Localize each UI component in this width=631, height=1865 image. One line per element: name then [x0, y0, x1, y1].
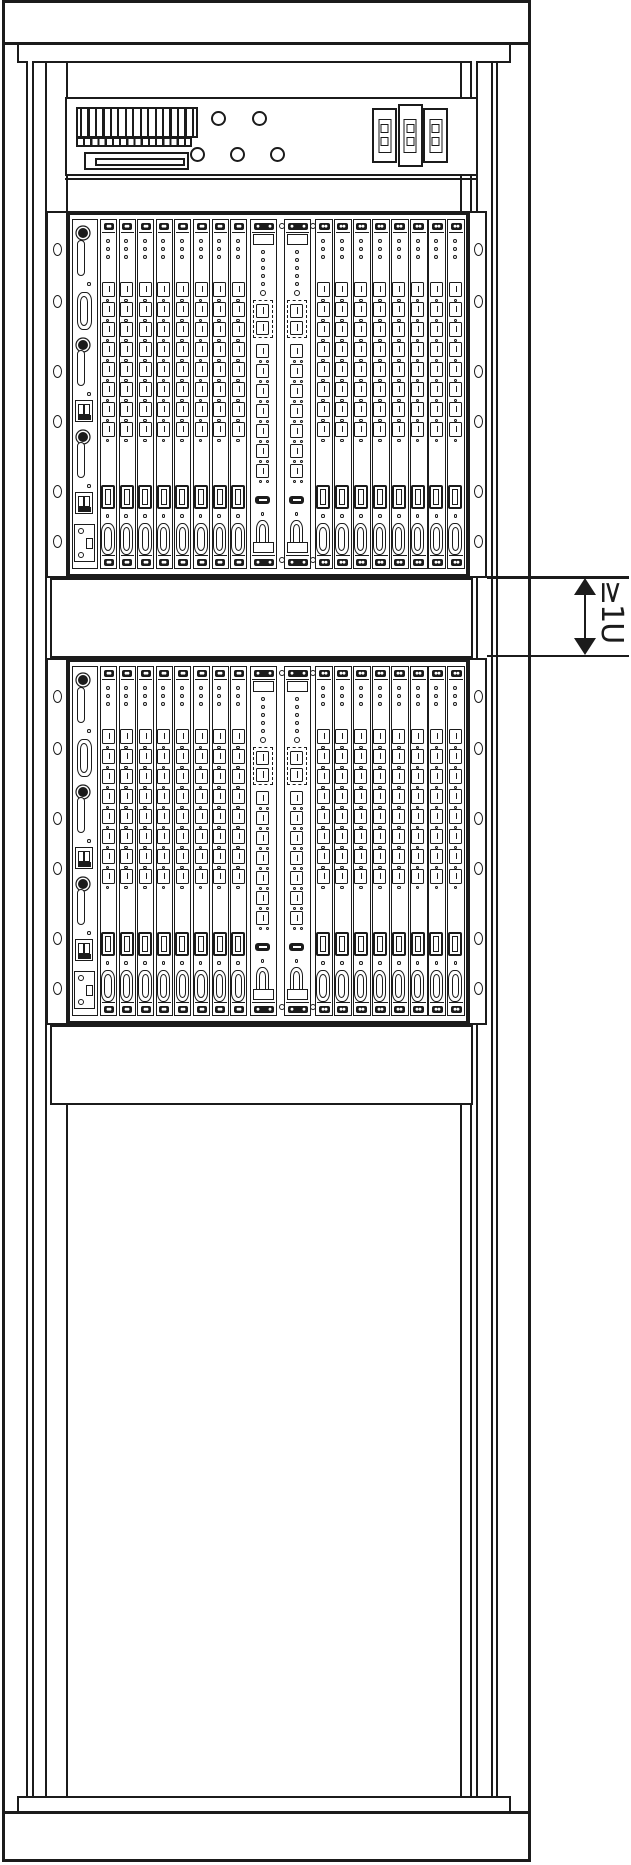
port-led — [293, 440, 297, 444]
card-top-latch — [393, 220, 407, 233]
flange-hole — [53, 485, 62, 498]
rj45-port — [256, 364, 269, 378]
latch-handle — [356, 559, 367, 566]
rj45-port — [232, 382, 245, 397]
port-led — [293, 420, 297, 424]
rj45-port — [411, 302, 424, 317]
rj45-port — [290, 791, 303, 805]
status-led — [453, 239, 457, 243]
status-led — [416, 255, 420, 259]
rj45-port — [411, 869, 424, 884]
rj45-port — [317, 382, 330, 397]
rj45-port — [176, 849, 189, 864]
rj45-port — [157, 302, 170, 317]
port-led — [293, 460, 297, 464]
subrack-1 — [46, 211, 487, 578]
port-led — [321, 514, 325, 518]
cage-screw — [279, 670, 285, 676]
latch-handle — [178, 670, 188, 677]
latch-handle — [432, 559, 443, 566]
status-led — [236, 702, 240, 706]
wide-rj45-port — [157, 485, 171, 509]
rj45-port — [120, 789, 133, 804]
port-led — [293, 887, 297, 891]
wide-rj45-port — [392, 932, 406, 956]
port-led — [143, 439, 147, 443]
card-bottom-latch — [214, 1002, 227, 1015]
port-led — [259, 420, 263, 424]
wide-rj45-port — [194, 932, 208, 956]
rj45-port — [102, 362, 115, 377]
card-top-latch — [121, 220, 134, 233]
flange-hole — [474, 243, 483, 256]
rj45-port — [317, 869, 330, 884]
port-led — [259, 440, 263, 444]
status-led — [295, 282, 299, 286]
status-led — [106, 686, 110, 690]
status-led — [434, 702, 438, 706]
latch-handle — [375, 670, 386, 677]
port-led — [259, 887, 263, 891]
bracket-screw — [78, 975, 84, 981]
rj45-port — [392, 789, 405, 804]
rj45-port — [373, 382, 386, 397]
rj45-port — [195, 829, 208, 844]
rj45-port — [411, 322, 424, 337]
wide-rj45-port — [101, 932, 115, 956]
fuse-block — [75, 939, 93, 961]
port-led — [293, 867, 297, 871]
port-led — [300, 887, 304, 891]
faceplate-screw — [294, 737, 300, 743]
rack-crossbar — [65, 178, 478, 180]
rj45-port — [120, 322, 133, 337]
port-led — [266, 480, 270, 484]
mounting-bracket — [74, 971, 95, 1009]
rj45-port — [256, 304, 269, 318]
rj45-port — [157, 382, 170, 397]
rj45-port — [430, 789, 443, 804]
rj45-port — [213, 322, 226, 337]
latch-handle — [159, 670, 169, 677]
rj45-port — [195, 422, 208, 437]
port-led — [259, 807, 263, 811]
line-card-narrow — [100, 666, 117, 1016]
rj45-port — [102, 869, 115, 884]
dsub-connector — [176, 970, 190, 1002]
status-led — [261, 250, 265, 254]
latch-handle — [254, 559, 274, 566]
rj45-port — [335, 422, 348, 437]
rj45-port — [195, 382, 208, 397]
wide-rj45-port — [157, 932, 171, 956]
port-led — [199, 886, 203, 890]
status-led — [199, 702, 203, 706]
rj45-port — [290, 811, 303, 825]
line-card-narrow — [410, 666, 428, 1016]
rj45-port — [411, 729, 424, 744]
dsub-connector — [430, 970, 444, 1002]
handle-slot — [77, 889, 85, 925]
card-top-latch — [121, 667, 134, 680]
rj45-port — [213, 849, 226, 864]
card-top-latch — [158, 667, 171, 680]
rj45-port — [449, 789, 462, 804]
status-led — [378, 694, 382, 698]
status-led — [106, 239, 110, 243]
rj45-port — [139, 729, 152, 744]
terminal-block — [76, 107, 198, 138]
card-top-latch — [232, 220, 245, 233]
port-led — [266, 400, 270, 404]
rack-rail — [491, 61, 493, 1797]
dsub-connector — [120, 970, 134, 1002]
line-card-narrow — [353, 666, 371, 1016]
port-led — [259, 827, 263, 831]
card-bottom-latch — [232, 555, 245, 568]
rj45-port — [195, 769, 208, 784]
rj45-port — [157, 789, 170, 804]
line-card-narrow — [137, 219, 154, 569]
latch-handle — [319, 559, 330, 566]
latch-handle — [104, 1006, 114, 1013]
rj45-port — [317, 829, 330, 844]
port-led — [217, 514, 221, 518]
rj45-port — [317, 729, 330, 744]
port-led — [300, 927, 304, 931]
rj45-port — [290, 871, 303, 885]
line-card-narrow — [447, 219, 465, 569]
flange-hole — [474, 862, 483, 875]
port-led — [300, 380, 304, 384]
rj45-port — [392, 769, 405, 784]
rj45-port — [176, 402, 189, 417]
status-led — [295, 713, 299, 717]
port-led — [162, 439, 166, 443]
card-cage — [68, 211, 468, 578]
flange-hole — [474, 690, 483, 703]
rj45-port — [449, 829, 462, 844]
status-led — [321, 686, 325, 690]
rj45-port — [120, 869, 133, 884]
status-led — [161, 247, 165, 251]
status-led — [295, 258, 299, 262]
rj45-port — [411, 809, 424, 824]
breaker-window — [432, 137, 440, 146]
rj45-port — [232, 402, 245, 417]
rj45-port — [157, 749, 170, 764]
card-top-latch — [430, 667, 444, 680]
rack-base — [2, 1811, 531, 1862]
rj45-port — [102, 322, 115, 337]
port-led — [236, 961, 240, 965]
rj45-port — [373, 322, 386, 337]
rj45-port — [335, 342, 348, 357]
rj45-port — [195, 322, 208, 337]
handle-slot — [77, 797, 85, 833]
card-top-latch — [214, 220, 227, 233]
card-bottom-latch — [121, 1002, 134, 1015]
faceplate-tab — [287, 234, 308, 245]
rj45-port — [139, 829, 152, 844]
flange-hole — [53, 415, 62, 428]
usb-port — [255, 943, 270, 951]
rj45-port — [335, 282, 348, 297]
latch-handle — [394, 559, 405, 566]
status-led — [87, 484, 91, 488]
status-led — [378, 255, 382, 259]
rj45-port — [290, 464, 303, 478]
line-card-narrow — [428, 219, 446, 569]
rj45-port — [430, 422, 443, 437]
rj45-port — [411, 749, 424, 764]
latch-handle — [178, 1006, 188, 1013]
status-led — [124, 702, 128, 706]
circuit-breaker — [423, 108, 448, 163]
line-card-wide — [284, 666, 311, 1016]
status-led — [124, 686, 128, 690]
rj45-port — [139, 809, 152, 824]
status-led — [199, 239, 203, 243]
status-led — [359, 239, 363, 243]
rj45-port — [354, 829, 367, 844]
rj45-port — [449, 302, 462, 317]
port-led — [293, 380, 297, 384]
rj45-port — [256, 321, 269, 335]
dsub-connector — [231, 523, 245, 555]
latch-handle — [159, 223, 169, 230]
rj45-port — [102, 422, 115, 437]
indicator-light — [190, 147, 205, 162]
rj45-port — [256, 911, 269, 925]
port-led — [454, 439, 458, 443]
rj45-port — [354, 402, 367, 417]
rj45-port — [120, 749, 133, 764]
card-top-latch — [252, 220, 275, 233]
port-led — [454, 886, 458, 890]
status-led — [161, 686, 165, 690]
rj45-port — [430, 809, 443, 824]
port-led — [124, 514, 128, 518]
latch-handle — [451, 223, 462, 230]
card-bottom-latch — [158, 555, 171, 568]
handle-slot — [77, 687, 85, 723]
rj45-port — [232, 849, 245, 864]
status-led — [106, 702, 110, 706]
port-led — [266, 887, 270, 891]
rj45-port — [317, 849, 330, 864]
latch-handle — [178, 223, 188, 230]
rj45-port — [120, 849, 133, 864]
port-led — [435, 961, 439, 965]
port-led — [293, 907, 297, 911]
flange-hole — [474, 485, 483, 498]
rj45-port — [102, 769, 115, 784]
port-led — [106, 514, 110, 518]
fuse-block — [75, 492, 93, 514]
rj45-port — [213, 422, 226, 437]
latch-handle — [375, 559, 386, 566]
rj45-port — [176, 422, 189, 437]
handle-slot — [77, 240, 85, 276]
rj45-port — [290, 444, 303, 458]
status-led — [261, 705, 265, 709]
status-led — [236, 255, 240, 259]
rj45-port — [373, 809, 386, 824]
rj45-port — [411, 849, 424, 864]
mounting-flange-left — [46, 211, 68, 578]
rj45-port — [176, 382, 189, 397]
line-card-narrow — [410, 219, 428, 569]
rj45-port — [157, 282, 170, 297]
latch-handle — [432, 223, 443, 230]
wide-rj45-port — [175, 485, 189, 509]
rj45-port — [449, 809, 462, 824]
rj45-port — [449, 422, 462, 437]
wide-rj45-port — [448, 932, 462, 956]
rj45-port — [232, 769, 245, 784]
rj45-port — [157, 769, 170, 784]
port-led — [293, 480, 297, 484]
port-led — [435, 514, 439, 518]
card-bottom-latch — [102, 1002, 115, 1015]
port-led — [217, 439, 221, 443]
card-top-latch — [252, 667, 275, 680]
latch-handle — [197, 223, 207, 230]
port-led — [259, 867, 263, 871]
rj45-port — [213, 342, 226, 357]
rj45-port — [335, 362, 348, 377]
status-led — [199, 686, 203, 690]
port-led — [340, 439, 344, 443]
line-card-wide — [250, 666, 277, 1016]
wide-rj45-port — [194, 485, 208, 509]
port-led — [236, 439, 240, 443]
wide-rj45-port — [448, 485, 462, 509]
card-bottom-latch — [336, 1002, 350, 1015]
card-top-latch — [195, 220, 208, 233]
card-top-latch — [139, 667, 152, 680]
rj45-port — [449, 282, 462, 297]
status-led — [434, 255, 438, 259]
card-top-latch — [232, 667, 245, 680]
rj45-port — [157, 402, 170, 417]
port-led — [236, 886, 240, 890]
wide-rj45-port — [335, 485, 349, 509]
rj45-port — [195, 729, 208, 744]
latch-handle — [141, 559, 151, 566]
rj45-port — [120, 302, 133, 317]
port-led — [259, 847, 263, 851]
rj45-port — [354, 382, 367, 397]
status-led — [359, 247, 363, 251]
rj45-port — [290, 304, 303, 318]
rack-rail — [496, 61, 498, 1797]
status-led — [340, 239, 344, 243]
latch-handle — [215, 1006, 225, 1013]
latch-handle — [319, 223, 330, 230]
dsub-connector — [213, 970, 227, 1002]
line-card-narrow — [174, 666, 191, 1016]
status-led — [217, 702, 221, 706]
port-led — [454, 514, 458, 518]
status-led — [143, 694, 147, 698]
status-led — [87, 729, 91, 733]
rj45-port — [213, 362, 226, 377]
rj45-port — [411, 769, 424, 784]
card-top-latch — [158, 220, 171, 233]
dual-rj45-block — [287, 300, 307, 338]
wide-rj45-port — [213, 932, 227, 956]
card-top-latch — [195, 667, 208, 680]
status-led — [340, 247, 344, 251]
status-led — [143, 247, 147, 251]
card-top-latch — [286, 667, 309, 680]
port-led — [293, 400, 297, 404]
latch-handle — [197, 559, 207, 566]
breaker-window — [381, 137, 389, 146]
rj45-port — [392, 869, 405, 884]
port-led — [293, 807, 297, 811]
port-led — [300, 480, 304, 484]
rj45-port — [354, 282, 367, 297]
rj45-port — [232, 869, 245, 884]
indicator-light — [211, 111, 226, 126]
port-led — [266, 927, 270, 931]
rj45-port — [449, 342, 462, 357]
rj45-port — [195, 302, 208, 317]
rj45-port — [157, 809, 170, 824]
rj45-port — [373, 849, 386, 864]
latch-handle — [234, 1006, 244, 1013]
latch-handle — [122, 223, 132, 230]
port-led — [295, 959, 299, 963]
rj45-port — [232, 322, 245, 337]
latch-handle — [122, 559, 132, 566]
wide-rj45-port — [373, 485, 387, 509]
card-bottom-latch — [214, 555, 227, 568]
latch-handle — [159, 559, 169, 566]
port-led — [106, 961, 110, 965]
port-led — [259, 927, 263, 931]
bracket-connector — [86, 538, 93, 549]
card-bottom-latch — [139, 555, 152, 568]
status-led — [180, 694, 184, 698]
flange-hole — [474, 982, 483, 995]
card-bottom-latch — [139, 1002, 152, 1015]
rj45-port — [317, 362, 330, 377]
rj45-port — [120, 402, 133, 417]
status-led — [236, 694, 240, 698]
line-card-narrow — [372, 666, 390, 1016]
latch-handle — [337, 1006, 348, 1013]
rj45-port — [373, 729, 386, 744]
status-led — [434, 694, 438, 698]
rj45-port — [176, 769, 189, 784]
status-led — [106, 247, 110, 251]
flange-hole — [53, 862, 62, 875]
status-led — [453, 247, 457, 251]
status-led — [261, 258, 265, 262]
breaker-window — [406, 124, 414, 133]
status-led — [378, 247, 382, 251]
port-led — [199, 514, 203, 518]
rj45-port — [392, 302, 405, 317]
latch-handle — [394, 670, 405, 677]
rj45-port — [139, 342, 152, 357]
port-led — [199, 961, 203, 965]
rj45-port — [176, 282, 189, 297]
